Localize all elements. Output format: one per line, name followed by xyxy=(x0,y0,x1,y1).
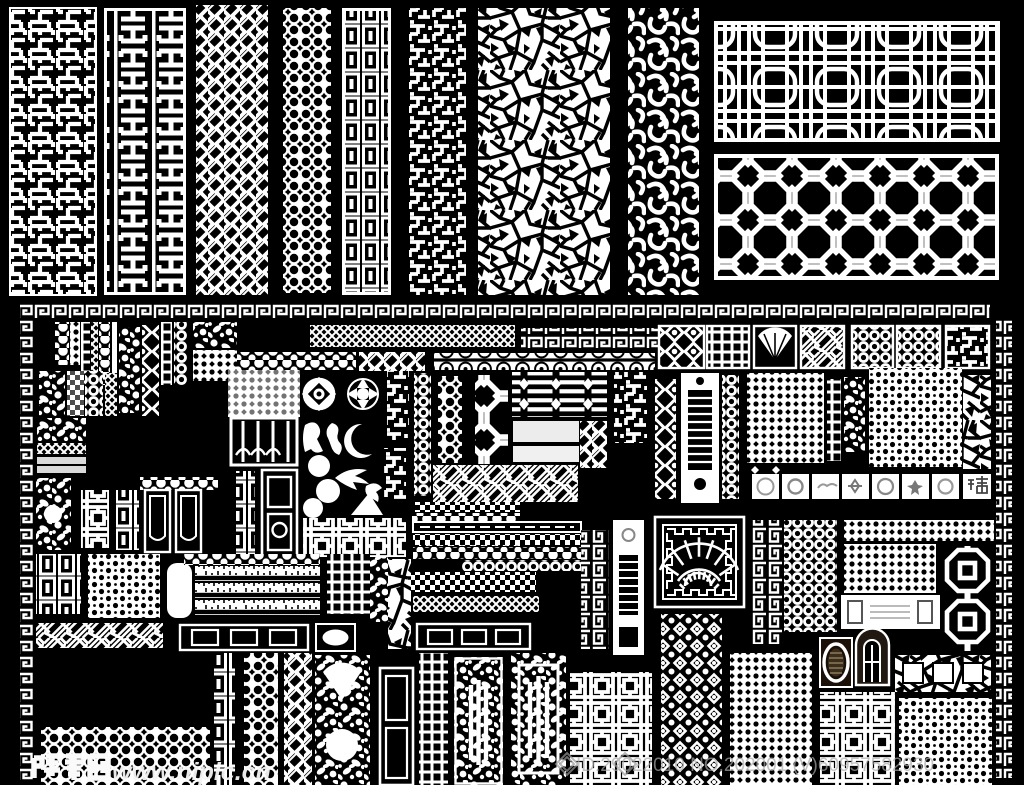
svg-text:www.nipic.cn: www.nipic.cn xyxy=(112,758,271,785)
svg-text:ID:29022010 NO.202001 (V)60957: ID:29022010 NO.202001 (V)60957582930 xyxy=(576,755,934,776)
